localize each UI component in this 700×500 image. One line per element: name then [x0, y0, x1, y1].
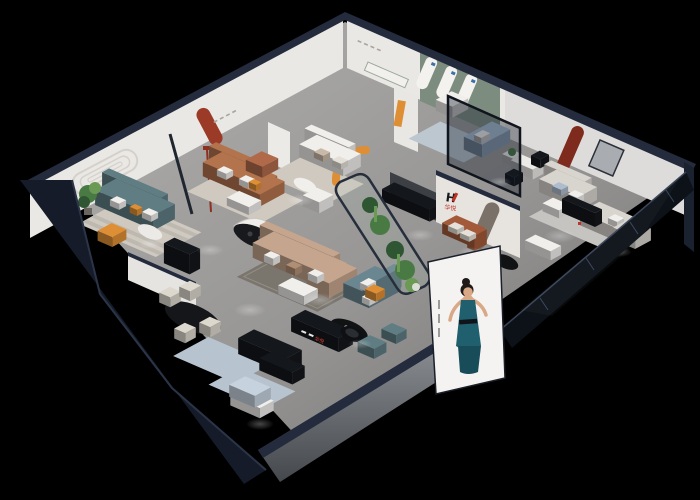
- cactus: [374, 206, 377, 222]
- shelf-logo-dot: [578, 222, 581, 225]
- cactus: [397, 254, 400, 272]
- brand-name-text: 华悦: [444, 203, 457, 213]
- showroom-render: H 华悦 华悦: [0, 0, 700, 500]
- showroom-scene: H 华悦 华悦: [0, 0, 700, 500]
- poster-side-text-dashes: [438, 300, 440, 337]
- facade-poster: [428, 246, 505, 394]
- white-orb-flower: [412, 283, 420, 291]
